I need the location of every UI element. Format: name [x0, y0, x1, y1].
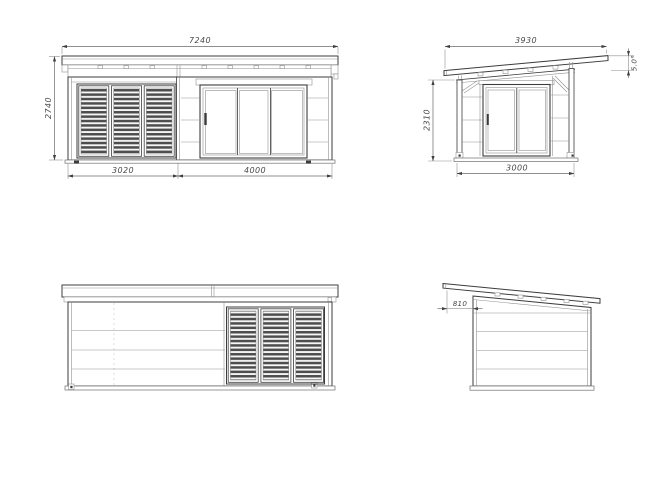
elevations-drawing: 7240 2740 3020 4000 — [0, 0, 667, 500]
floor-base — [65, 386, 335, 390]
wall-post — [569, 69, 574, 159]
louver-slats — [114, 88, 140, 154]
louver-slats — [146, 88, 172, 154]
front-sliding-door — [196, 79, 312, 158]
post-foot — [306, 161, 311, 164]
door-header — [196, 79, 312, 85]
front-elevation: 7240 2740 3020 4000 — [44, 36, 338, 179]
side-sliding-door — [479, 81, 554, 157]
floor-base — [470, 386, 594, 390]
louver-panel — [112, 86, 142, 157]
sl-wall — [470, 296, 594, 390]
side-elevation-right: 3930 5.0° 2310 3000 — [423, 36, 639, 177]
louver-slats — [230, 311, 256, 380]
front-right-section-label: 4000 — [244, 166, 266, 175]
side-roof — [444, 56, 608, 83]
floor-base — [65, 160, 335, 163]
rafter-band — [68, 65, 331, 77]
louver-slats — [296, 311, 322, 380]
side-dim-depth: 3000 — [457, 163, 574, 177]
technical-drawing-page: 7240 2740 3020 4000 — [0, 0, 667, 500]
front-roof-fascia — [62, 56, 338, 79]
louver-panel — [79, 86, 109, 157]
side-depth-label: 3000 — [506, 164, 528, 173]
door-header — [479, 81, 554, 85]
door-handle — [204, 113, 206, 125]
side-dim-wall-height: 2310 — [423, 80, 456, 161]
louver-panel — [144, 86, 174, 157]
front-left-section-label: 3020 — [112, 166, 134, 175]
side-roof-pitch-label: 5.0° — [630, 55, 639, 71]
front-dim-sections: 3020 4000 — [68, 161, 332, 179]
front-dim-total-height: 2740 — [44, 57, 63, 161]
rear-roof-fascia — [62, 285, 338, 302]
fascia-left-end-trim — [62, 65, 68, 72]
front-total-width-label: 7240 — [189, 36, 211, 45]
rear-elevation — [62, 285, 338, 390]
louver-panel — [228, 309, 258, 383]
wall-post — [457, 80, 462, 158]
post-foot — [74, 161, 79, 164]
rear-louver-wall — [227, 307, 325, 384]
fascia-right-end-trim — [331, 65, 338, 74]
door-handle — [487, 114, 489, 125]
rafter-band — [64, 297, 336, 302]
side-roof-length-label: 3930 — [515, 36, 537, 45]
side-wall-height-label: 2310 — [423, 109, 432, 131]
side-elevation-left: 810 — [438, 284, 601, 391]
louver-slats — [263, 311, 289, 380]
corner-brace — [462, 81, 479, 93]
front-total-height-label: 2740 — [44, 97, 53, 119]
corner-brace — [553, 76, 569, 92]
side-dim-roof-pitch: 5.0° — [609, 49, 639, 79]
louver-panel — [261, 309, 291, 383]
floor-base — [454, 158, 578, 162]
sl-overhang-label: 810 — [453, 299, 468, 308]
front-dim-total-width: 7240 — [62, 36, 338, 54]
louver-panel — [294, 309, 324, 383]
louver-slats — [81, 88, 107, 154]
front-louver-wall — [71, 82, 176, 158]
